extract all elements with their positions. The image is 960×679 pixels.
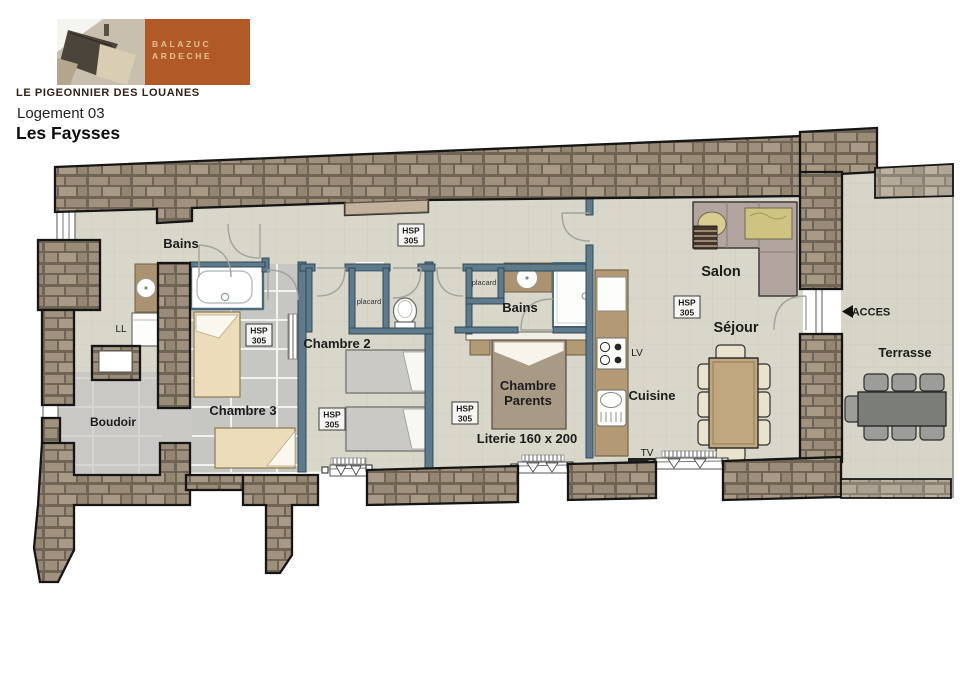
wall-entry-south xyxy=(800,334,842,462)
wall-terrasse-north xyxy=(875,164,953,198)
svg-text:HSP: HSP xyxy=(323,410,341,420)
wall-south-strip xyxy=(186,475,243,490)
chair-icon xyxy=(864,374,888,391)
wall-flue xyxy=(345,200,428,215)
wall-south-2 xyxy=(568,462,656,500)
label-tv: TV xyxy=(641,448,654,459)
room-label-terrasse: Terrasse xyxy=(878,345,931,360)
room-label-parents-2: Parents xyxy=(504,393,552,408)
room-label-salon: Salon xyxy=(701,264,740,280)
room-label-sejour: Séjour xyxy=(713,320,758,336)
hsp-box: HSP 305 xyxy=(246,324,272,346)
chair-icon xyxy=(892,374,916,391)
room-label-parents-1: Chambre xyxy=(500,378,556,393)
svg-text:HSP: HSP xyxy=(456,404,474,414)
brand-line1: BALAZUC xyxy=(152,39,211,49)
label-placard2: placard xyxy=(472,278,497,287)
wall-entry-north xyxy=(800,172,842,289)
fridge-icon xyxy=(597,277,626,311)
hsp-box: HSP 305 xyxy=(452,402,478,424)
wc-toilet-icon xyxy=(394,298,417,331)
wall-chimney xyxy=(800,128,877,176)
wall-south-1 xyxy=(367,466,518,505)
svg-text:305: 305 xyxy=(325,420,339,430)
nightstand-icon xyxy=(470,340,490,355)
brand-line2: ARDECHE xyxy=(152,51,212,61)
svg-text:HSP: HSP xyxy=(250,326,268,336)
wall-south-3 xyxy=(723,457,841,500)
wall-terrasse-south xyxy=(841,479,951,498)
svg-text:305: 305 xyxy=(404,236,418,246)
header: BALAZUC ARDECHE LE PIGEONNIER DES LOUANE… xyxy=(16,19,250,143)
terrasse-table-icon xyxy=(858,392,946,426)
room-label-boudoir: Boudoir xyxy=(90,415,136,429)
window-icon xyxy=(518,455,568,473)
logo-photo-pigeonnier xyxy=(57,19,145,85)
svg-text:HSP: HSP xyxy=(402,226,420,236)
radiator-icon xyxy=(288,314,297,359)
window-icon xyxy=(57,211,75,243)
partition-wall xyxy=(425,262,433,472)
label-placard1: placard xyxy=(357,297,382,306)
unit-label: Logement 03 xyxy=(17,105,105,122)
wall-west-upper xyxy=(38,240,100,310)
svg-text:HSP: HSP xyxy=(678,298,696,308)
wall-bains-column xyxy=(158,263,190,408)
wall-west xyxy=(42,310,74,405)
floor-plan-page: BALAZUC ARDECHE LE PIGEONNIER DES LOUANE… xyxy=(0,0,960,679)
site-name: LE PIGEONNIER DES LOUANES xyxy=(16,87,200,99)
svg-text:305: 305 xyxy=(252,336,266,346)
label-ll: LL xyxy=(115,324,127,335)
wall-south-jag xyxy=(243,475,318,573)
room-label-cuisine: Cuisine xyxy=(629,388,676,403)
window-icon xyxy=(656,451,723,469)
dining-table-icon xyxy=(709,358,758,448)
room-label-bains1: Bains xyxy=(163,236,198,251)
chair-icon xyxy=(920,374,944,391)
window-icon xyxy=(330,458,367,476)
room-label-bains2: Bains xyxy=(502,300,537,315)
niche-icon xyxy=(99,351,132,372)
label-acces: ACCES xyxy=(852,307,891,319)
hsp-box: HSP 305 xyxy=(674,296,700,318)
washing-machine-icon xyxy=(132,313,158,346)
nightstand-icon xyxy=(566,340,586,355)
hsp-box: HSP 305 xyxy=(398,224,424,246)
pillow-icon xyxy=(745,208,792,239)
floor-plan-canvas: BALAZUC ARDECHE LE PIGEONNIER DES LOUANE… xyxy=(0,0,960,679)
partition-wall xyxy=(298,262,306,472)
stove-icon xyxy=(597,338,626,369)
unit-name: Les Faysses xyxy=(16,123,120,143)
label-literie: Literie 160 x 200 xyxy=(477,431,577,446)
svg-text:305: 305 xyxy=(458,414,472,424)
hsp-box: HSP 305 xyxy=(319,408,345,430)
room-label-chambre3: Chambre 3 xyxy=(209,403,276,418)
svg-text:305: 305 xyxy=(680,308,694,318)
label-lv: LV xyxy=(631,348,643,359)
room-label-chambre2: Chambre 2 xyxy=(303,336,370,351)
entry-door-leaf xyxy=(816,289,822,334)
